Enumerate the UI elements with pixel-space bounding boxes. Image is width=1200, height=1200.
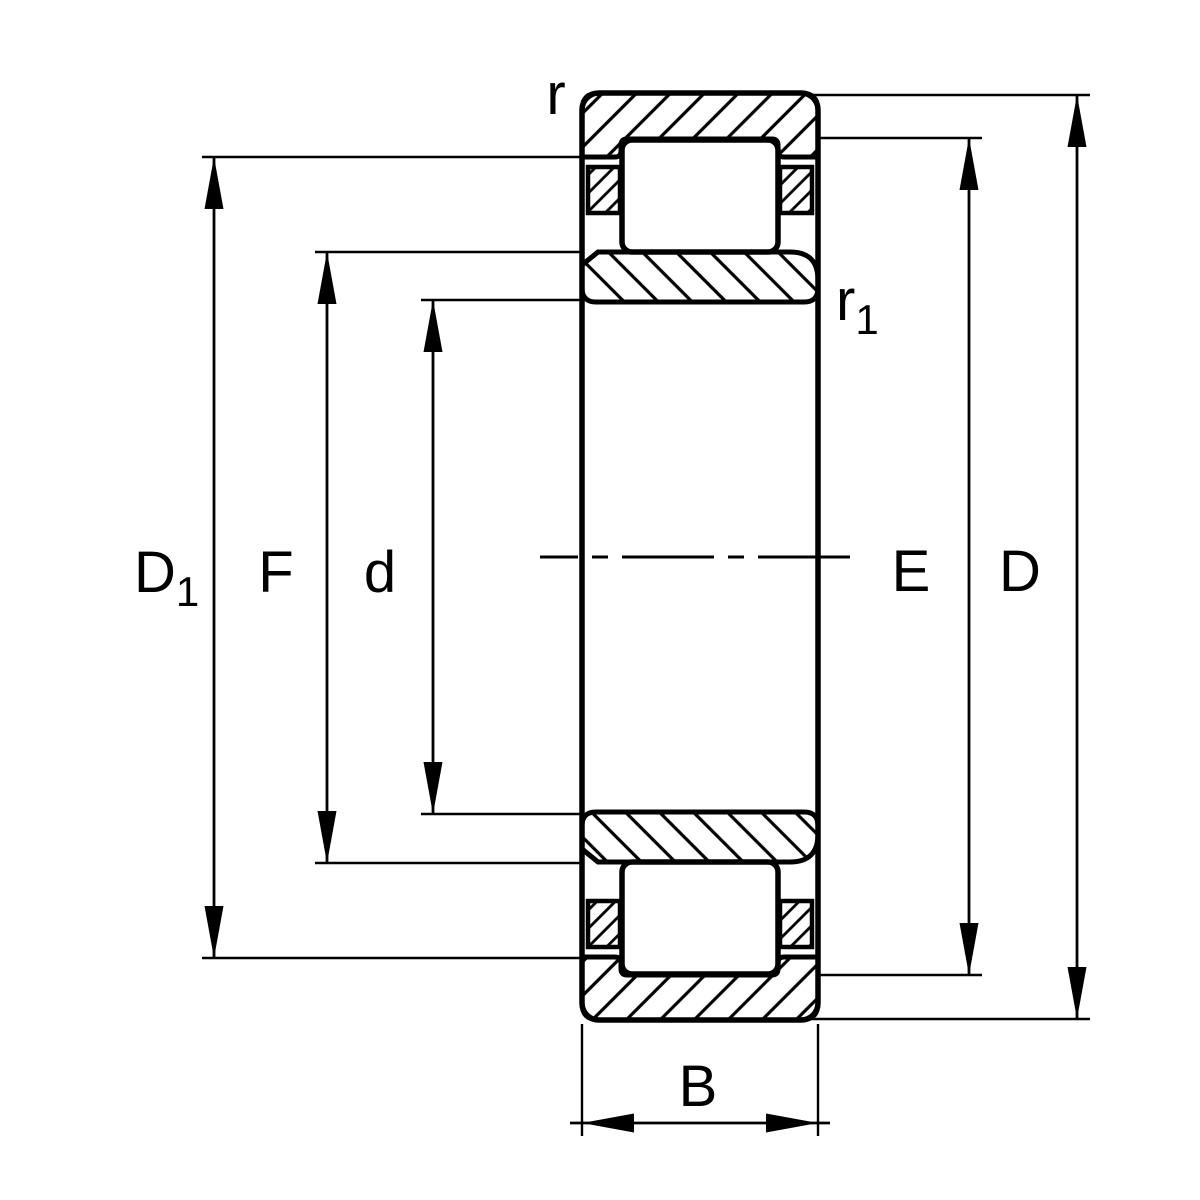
dimension-label-F: F (258, 540, 293, 605)
bearing-schematic-canvas: D1 F d E D (0, 0, 1200, 1200)
cage-segment-top-left (588, 167, 620, 213)
roller-top (622, 140, 778, 252)
dimension-label-B: B (679, 1054, 718, 1119)
cage-segment-bottom-left (588, 901, 620, 947)
label-main: r (836, 268, 855, 333)
cage-segment-top-right (780, 167, 812, 213)
chamfer-label-r: r (546, 62, 565, 127)
dimension-label-E: E (892, 539, 931, 604)
label-main: D (134, 540, 176, 605)
dimension-label-D: D (999, 539, 1041, 604)
cage-segment-bottom-right (780, 901, 812, 947)
label-subscript: 1 (855, 296, 878, 343)
dimension-label-d: d (364, 540, 396, 605)
bearing-dimension-drawing: D1 F d E D (0, 0, 1200, 1200)
inner-ring-bottom-section (582, 812, 818, 862)
inner-ring-top-section (582, 252, 818, 302)
roller-bottom (622, 862, 778, 974)
label-subscript: 1 (176, 568, 199, 615)
